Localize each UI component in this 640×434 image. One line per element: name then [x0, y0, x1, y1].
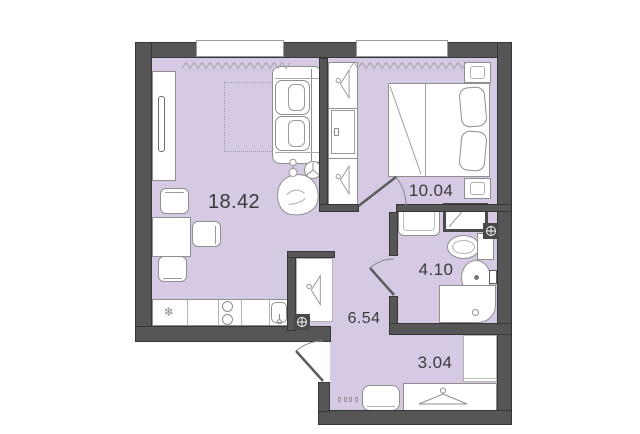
vent-icon [483, 223, 499, 239]
bathroom-area-label: 4.10 [401, 260, 471, 280]
shoe-mark [349, 397, 352, 402]
sofa-armrest-line-bottom [275, 152, 319, 153]
entry-pouf [362, 385, 400, 411]
wall-living-bedroom [319, 58, 328, 212]
toilet-bowl [447, 235, 480, 259]
washing-machine-panel [403, 209, 435, 231]
dining-chair [160, 188, 189, 214]
nightstand-detail [470, 66, 485, 79]
counter-divider [269, 300, 270, 325]
nightstand-detail [470, 182, 485, 195]
wall-bathroom-left-upper [389, 212, 398, 256]
toilet-bowl-inner [452, 240, 475, 254]
entry-door [296, 341, 323, 381]
hanger-icon [334, 65, 352, 103]
wall-bathroom-bottom [389, 323, 512, 335]
counter-divider [218, 300, 219, 325]
nightstand [464, 62, 491, 83]
counter-divider [241, 300, 242, 325]
wall-right [497, 42, 512, 425]
hanger-icon [414, 386, 472, 408]
bedroom-area-label: 10.04 [396, 181, 466, 201]
pillow [458, 86, 487, 128]
counter-divider [187, 300, 188, 325]
wall-bedroom-bottom-left [319, 204, 359, 212]
dining-table [152, 217, 191, 257]
pouf-base-line [367, 406, 395, 407]
cooktop-burner [222, 301, 233, 312]
living-room-area-label: 18.42 [199, 191, 269, 214]
chair-back-line [163, 278, 182, 279]
sofa-armrest-line-top [275, 78, 319, 79]
shoe-mark [338, 397, 341, 402]
sofa-back-line [311, 69, 312, 161]
blanket-fold-line [389, 84, 423, 176]
sink-drain-dot [474, 275, 479, 280]
shower-drain [472, 309, 479, 316]
wardrobe-shelf-line [329, 158, 357, 159]
floor-plan-canvas: ❄ [0, 0, 640, 434]
vent-icon [294, 314, 310, 330]
chair-back-line [165, 192, 184, 193]
cooktop-burner [222, 314, 233, 325]
tv-icon [158, 96, 165, 152]
window-bedroom [356, 40, 448, 57]
shoe-mark [355, 397, 358, 402]
sofa [272, 66, 322, 164]
sofa-pillow [288, 84, 305, 111]
dining-chair [158, 256, 187, 282]
pillow [458, 130, 487, 172]
wall-entry-stub [318, 382, 330, 412]
wardrobe-shelf-line [329, 108, 357, 109]
shoe-mark [344, 397, 347, 402]
wall-bedroom-bottom-right [396, 204, 512, 212]
wall-bottom [318, 410, 512, 425]
bedroom-dresser [331, 110, 355, 154]
chair-back-line [215, 226, 216, 244]
wall-closet-top [287, 251, 335, 258]
sink-tap [489, 270, 497, 284]
hanger-icon [305, 268, 323, 312]
wall-top [135, 42, 512, 58]
dining-chair [192, 221, 221, 247]
sofa-pillow [288, 120, 305, 147]
fridge-snowflake-icon: ❄ [155, 305, 183, 319]
window-living [196, 40, 284, 57]
vase-decor-icon [286, 156, 300, 178]
nightstand [464, 178, 491, 199]
hanger-icon [334, 161, 352, 199]
shower-cabin [439, 285, 496, 323]
entry-closet-shelf-line [464, 378, 496, 379]
kitchen-faucet-icon [275, 313, 284, 325]
entry-area-label: 3.04 [400, 353, 470, 373]
duvet-edge-line [425, 84, 426, 176]
wall-left [135, 42, 152, 342]
dresser-handle [334, 128, 339, 136]
hallway-area-label: 6.54 [329, 310, 399, 328]
